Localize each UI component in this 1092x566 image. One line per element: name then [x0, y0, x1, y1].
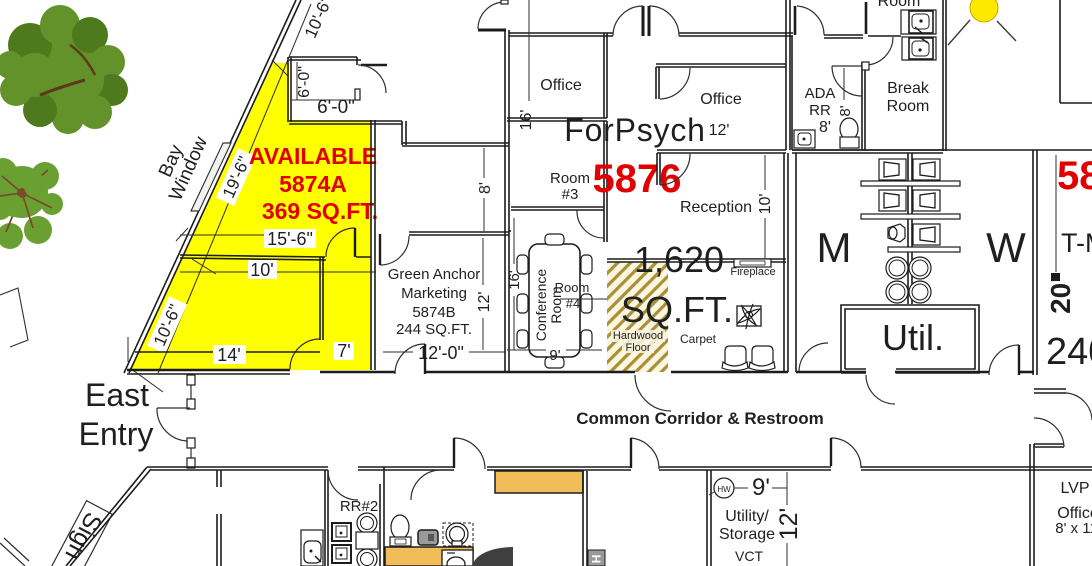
svg-text:9': 9'	[549, 347, 560, 364]
svg-text:12': 12'	[775, 508, 803, 541]
svg-text:8': 8'	[477, 182, 494, 194]
svg-text:Hardwood: Hardwood	[613, 330, 663, 342]
svg-text:Room: Room	[878, 0, 921, 10]
svg-text:W: W	[986, 224, 1026, 271]
svg-text:T-M: T-M	[1061, 228, 1092, 258]
svg-text:Green Anchor: Green Anchor	[388, 266, 481, 283]
svg-text:Office: Office	[540, 77, 582, 94]
svg-text:Entry: Entry	[79, 416, 154, 452]
svg-text:6'-0": 6'-0"	[296, 66, 313, 98]
svg-text:AVAILABLE: AVAILABLE	[249, 143, 377, 169]
svg-text:VCT: VCT	[735, 548, 763, 564]
svg-text:#4: #4	[566, 296, 580, 311]
svg-text:15'-6": 15'-6"	[267, 229, 313, 249]
svg-text:20': 20'	[1045, 276, 1076, 314]
svg-text:H: H	[589, 555, 603, 564]
svg-text:Utility/: Utility/	[725, 508, 769, 525]
svg-text:8' x 11': 8' x 11'	[1055, 520, 1092, 537]
svg-text:Room: Room	[550, 170, 590, 187]
svg-text:Marketing: Marketing	[401, 285, 467, 302]
svg-text:7': 7'	[337, 341, 350, 361]
svg-text:Storage: Storage	[719, 526, 775, 543]
svg-text:Room: Room	[555, 280, 590, 295]
svg-text:Common Corridor & Restroom: Common Corridor & Restroom	[576, 409, 823, 428]
svg-text:Conference: Conference	[533, 269, 549, 342]
svg-text:8': 8'	[837, 105, 854, 116]
svg-text:12'-0": 12'-0"	[418, 343, 464, 363]
svg-text:5874A: 5874A	[279, 171, 347, 197]
svg-text:14': 14'	[217, 345, 240, 365]
svg-text:10': 10'	[757, 194, 774, 215]
svg-text:Fireplace: Fireplace	[730, 266, 775, 278]
svg-text:Room: Room	[887, 98, 930, 115]
svg-text:244 SQ.FT.: 244 SQ.FT.	[396, 321, 472, 338]
svg-text:Carpet: Carpet	[680, 332, 717, 346]
svg-text:10': 10'	[250, 260, 273, 280]
svg-text:12': 12'	[709, 122, 730, 139]
svg-text:Floor: Floor	[625, 342, 650, 354]
svg-text:369 SQ.FT.: 369 SQ.FT.	[262, 198, 378, 224]
svg-text:M: M	[817, 224, 852, 271]
svg-text:5874B: 5874B	[412, 304, 455, 321]
svg-text:587: 587	[1057, 154, 1092, 198]
svg-text:#3: #3	[562, 186, 579, 203]
svg-text:East: East	[85, 377, 149, 413]
svg-text:Office: Office	[700, 91, 742, 108]
svg-text:ADA: ADA	[805, 85, 836, 102]
svg-text:LVP: LVP	[1060, 480, 1089, 497]
svg-text:SQ.FT.: SQ.FT.	[621, 289, 733, 330]
svg-text:Util.: Util.	[882, 317, 944, 358]
svg-text:16': 16'	[518, 110, 535, 131]
svg-text:9': 9'	[752, 474, 770, 501]
svg-text:HW: HW	[717, 485, 731, 494]
svg-text:6'-0": 6'-0"	[317, 97, 355, 118]
svg-text:5876: 5876	[593, 157, 682, 201]
svg-text:Break: Break	[887, 80, 930, 97]
svg-text:RR: RR	[809, 102, 831, 119]
svg-text:12': 12'	[476, 292, 493, 313]
svg-text:8': 8'	[819, 119, 831, 136]
svg-text:RR#2: RR#2	[340, 498, 378, 515]
svg-text:16': 16'	[506, 270, 523, 290]
svg-text:ForPsych: ForPsych	[564, 112, 706, 148]
svg-text:Reception: Reception	[680, 199, 752, 216]
svg-text:240: 240	[1046, 331, 1092, 373]
